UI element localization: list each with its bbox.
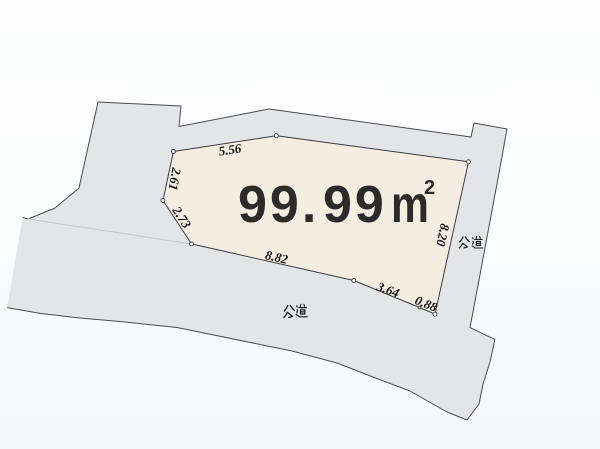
- svg-text:99: 99: [323, 176, 387, 234]
- svg-text:2: 2: [424, 177, 435, 199]
- svg-text:99.: 99.: [238, 176, 319, 234]
